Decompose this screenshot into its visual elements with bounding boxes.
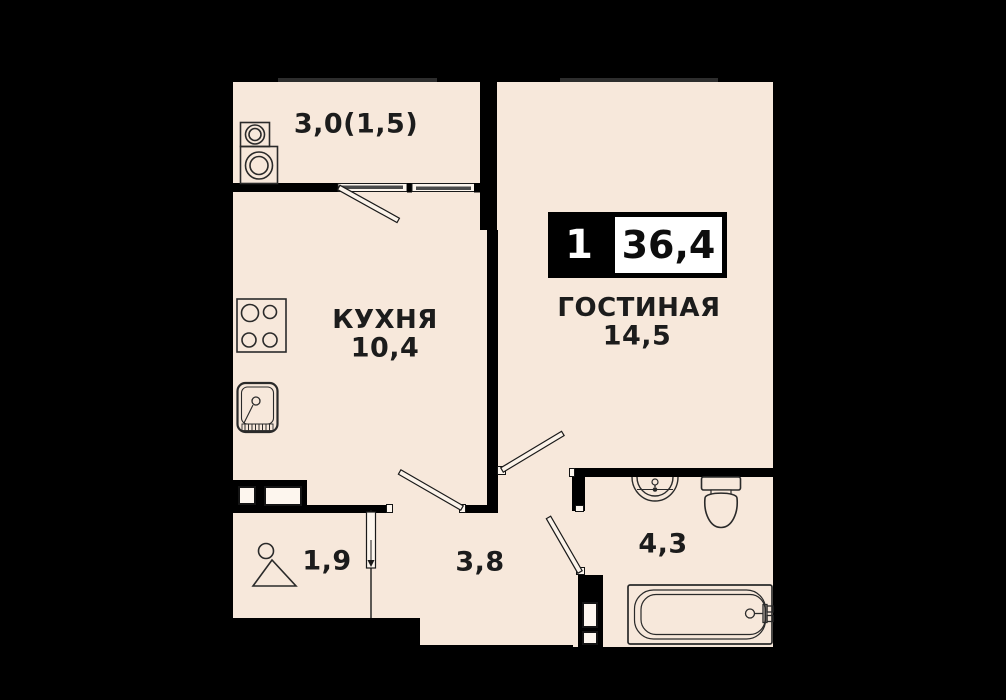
living-area-label: 14,5 — [603, 321, 672, 352]
wash-basin-icon — [632, 477, 678, 501]
balcony-door-window-unit — [338, 183, 480, 193]
living-door-leaf — [501, 431, 564, 472]
room-count-badge: 1 — [548, 212, 610, 278]
bathroom-area-label: 4,3 — [638, 529, 687, 560]
toilet-icon — [702, 477, 741, 528]
apartment-badge: 1 36,4 — [548, 212, 727, 278]
fixtures-layer — [0, 0, 1006, 700]
total-area-badge: 36,4 — [610, 212, 727, 278]
bathtub-icon — [628, 585, 773, 644]
balcony-area-label: 3,0(1,5) — [294, 109, 418, 140]
sliding-door — [367, 510, 376, 618]
kitchen-sink-icon — [238, 383, 278, 432]
bathroom-door-leaf — [546, 516, 582, 573]
floor-plan: 3,0(1,5) КУХНЯ 10,4 ГОСТИНАЯ 14,5 1,9 3,… — [0, 0, 1006, 700]
stove-icon — [237, 299, 286, 352]
kitchen-name-label: КУХНЯ — [332, 305, 438, 335]
kitchen-area-label: 10,4 — [351, 333, 420, 364]
washer-stack-icon — [241, 123, 278, 184]
wardrobe-area-label: 1,9 — [302, 546, 351, 577]
bath-faucet-icon — [746, 605, 774, 623]
living-name-label: ГОСТИНАЯ — [557, 293, 720, 323]
hanger-icon — [253, 544, 296, 587]
kitchen-door-leaf — [398, 470, 463, 510]
hallway-area-label: 3,8 — [455, 547, 504, 578]
